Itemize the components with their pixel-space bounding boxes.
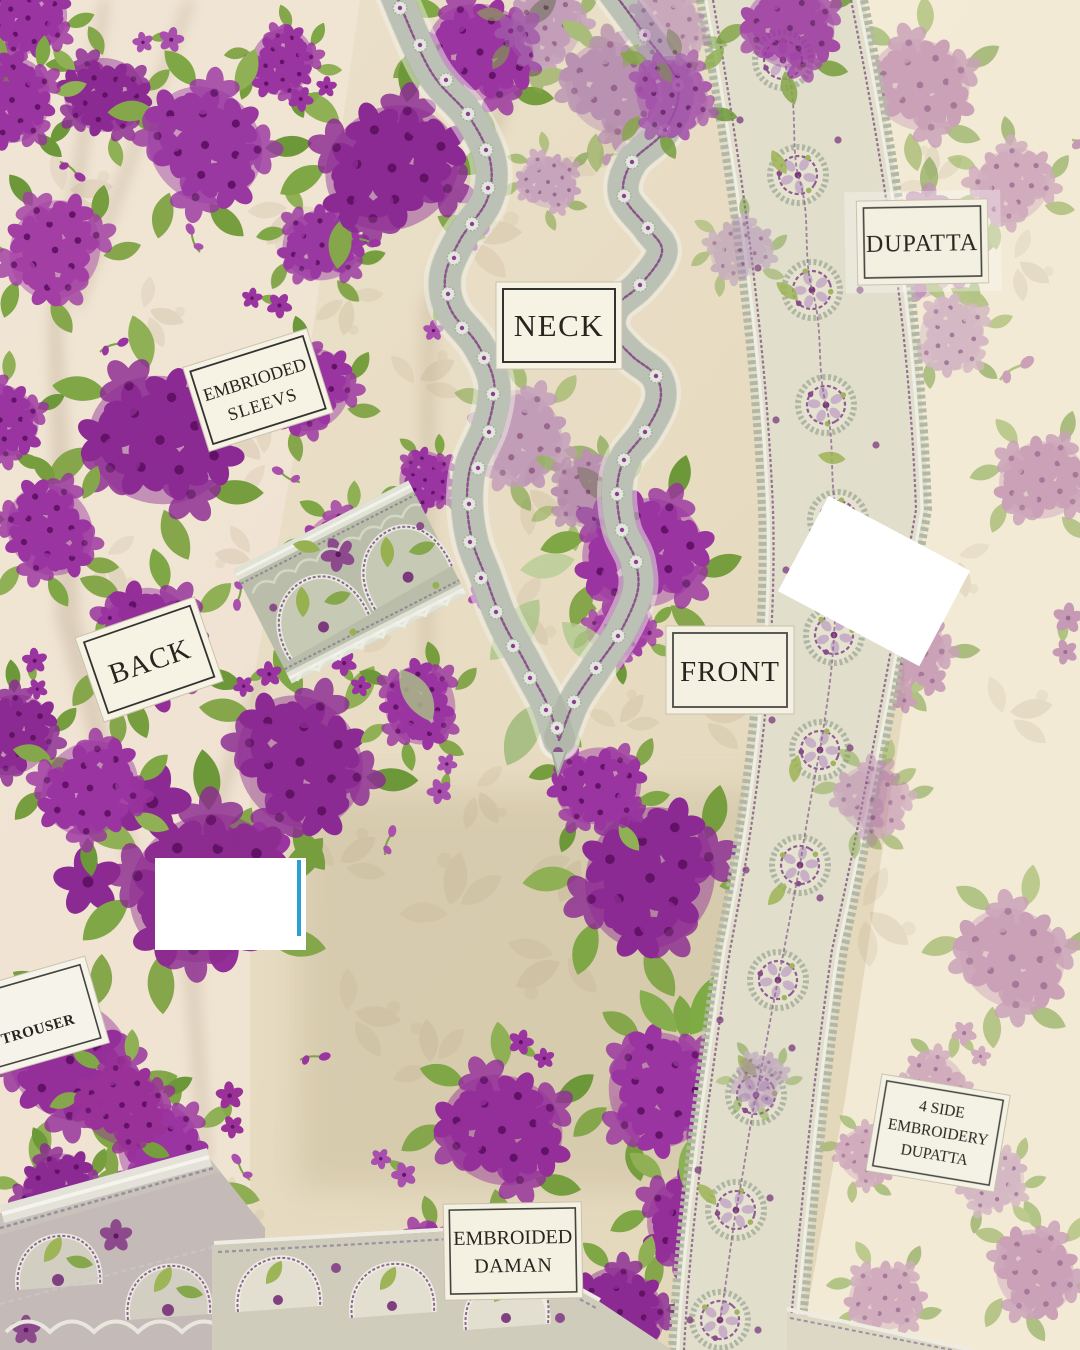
svg-text:DUPATTA: DUPATTA bbox=[866, 230, 979, 258]
svg-text:DAMAN: DAMAN bbox=[474, 1254, 552, 1277]
svg-text:NECK: NECK bbox=[514, 308, 604, 343]
svg-text:FRONT: FRONT bbox=[680, 656, 780, 688]
svg-text:EMBROIDED: EMBROIDED bbox=[453, 1226, 572, 1250]
